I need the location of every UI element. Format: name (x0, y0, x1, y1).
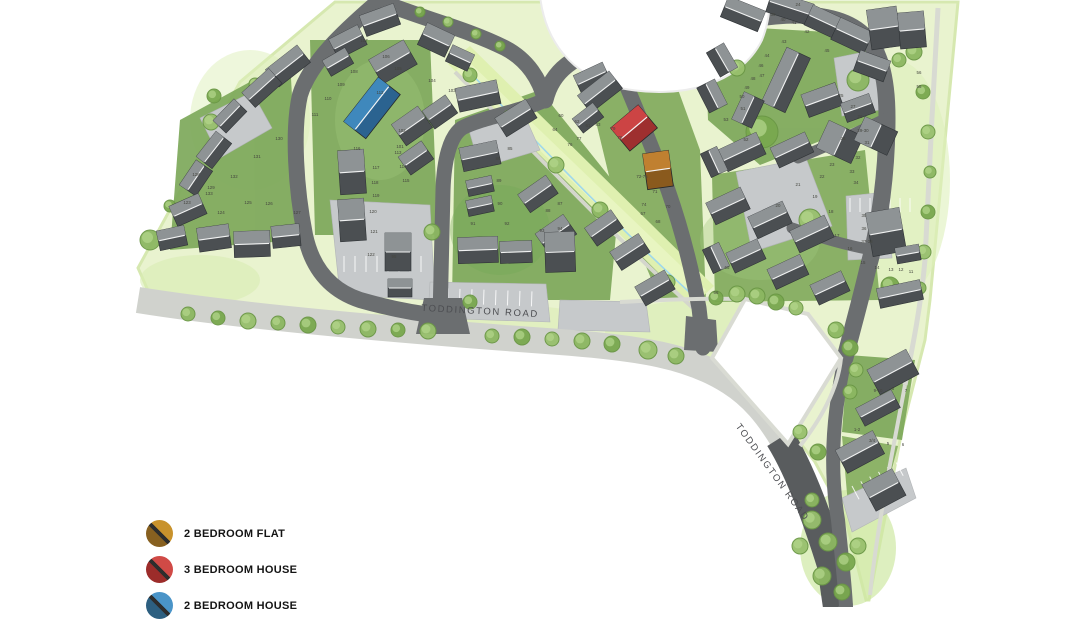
tree (805, 493, 819, 507)
plot-number-label: 112 (377, 90, 385, 95)
plot-number-label: 74 (642, 202, 647, 207)
plot-number-label: 124 (217, 210, 225, 215)
plot-number-label: 118 (372, 180, 380, 185)
plot-number-label: 24 (796, 2, 801, 7)
plot-number-label: 87 (558, 201, 563, 206)
plot-number-label: 40 (781, 17, 786, 22)
tree (834, 584, 850, 600)
plot-number-label: 108 (350, 69, 358, 74)
plot-number-label: 102 (398, 128, 406, 133)
tree (924, 166, 936, 178)
plot-number-label: 47 (760, 73, 765, 78)
plot-number-label: 52 (744, 137, 749, 142)
plot-number-label: 94 (558, 226, 563, 231)
tree (842, 340, 858, 356)
plot-number-label: 41 (792, 20, 797, 25)
plot-number-label: 50 (740, 94, 745, 99)
plot-number-label: 68 (656, 219, 661, 224)
plot-number-label: 1-2 (854, 427, 861, 432)
plot-number-label: 17 (835, 233, 840, 238)
tree (391, 323, 405, 337)
tree (639, 341, 657, 359)
plot-number-label: 61 (586, 123, 591, 128)
tree (548, 157, 564, 173)
plot-number-label: 106 (382, 54, 390, 59)
plot-number-label: 56 (917, 70, 922, 75)
tree (837, 553, 855, 571)
available-unit-2-bedroom-flat[interactable] (643, 150, 674, 189)
tree (443, 17, 453, 27)
plot-number-label: 65 (725, 265, 730, 270)
tree (819, 533, 837, 551)
plot-number-label: 18 (829, 209, 834, 214)
plot-number-label: 117 (373, 165, 381, 170)
plot-number-label: 88 (546, 208, 551, 213)
plot-number-label: 72-75 (636, 174, 648, 179)
plot-number-label: 6 (902, 442, 905, 447)
tree (792, 538, 808, 554)
plot-number-label: 11 (909, 269, 914, 274)
house-block (544, 231, 575, 272)
plot-number-label: 115 (403, 178, 411, 183)
tree (485, 329, 499, 343)
plot-number-label: 132 (230, 174, 238, 179)
plot-number-label: 64 (553, 127, 558, 132)
tree (729, 286, 745, 302)
plot-number-label: 32 (856, 155, 861, 160)
tree (850, 538, 866, 554)
plot-number-label: 86 (496, 156, 501, 161)
tree (574, 333, 590, 349)
plot-number-label: 131 (253, 154, 261, 159)
plot-number-label: 34 (854, 180, 859, 185)
house-block (338, 198, 367, 242)
house-block (271, 224, 301, 249)
plot-number-label: 55 (917, 84, 922, 89)
plot-number-label: 120 (369, 209, 377, 214)
plot-number-label: 123 (183, 200, 191, 205)
plot-number-label: 44 (765, 53, 770, 58)
plot-number-label: 122 (367, 252, 375, 257)
plot-number-label: 16 (848, 246, 853, 251)
plot-number-label: 29-30 (857, 128, 869, 133)
tree (668, 348, 684, 364)
plot-number-label: 63 (596, 122, 601, 127)
plot-number-label: 14 (875, 265, 880, 270)
plot-number-label: 113 (395, 150, 403, 155)
plot-number-label: 33 (850, 169, 855, 174)
tree (415, 7, 425, 17)
tree (495, 41, 505, 51)
tree (828, 322, 844, 338)
tree (207, 89, 221, 103)
plot-number-label: 28 (858, 114, 863, 119)
plot-number-label: 22 (820, 174, 825, 179)
plot-number-label: 127 (293, 210, 301, 215)
plot-number-label: 110 (325, 96, 333, 101)
plot-number-label: 51 (741, 106, 746, 111)
tree (921, 125, 935, 139)
plot-number-label: 35 (862, 213, 867, 218)
site-plan-map: 1231241251261271281291301311321331011021… (0, 0, 1080, 607)
house-block (385, 233, 411, 271)
plot-number-label: 121 (370, 229, 378, 234)
plot-number-label: 114 (400, 164, 408, 169)
plot-number-label: 62 (575, 119, 580, 124)
site-plan-page: { "map": { "description": "Housing devel… (0, 0, 1080, 607)
tree (768, 294, 784, 310)
plot-number-label: 128 (192, 172, 200, 177)
house-block (196, 224, 231, 252)
tree (514, 329, 530, 345)
plot-number-label: 109 (337, 82, 345, 87)
house-block (866, 6, 901, 50)
plot-number-label: 48 (751, 76, 756, 81)
tree (545, 332, 559, 346)
plot-number-label: 3/4 (869, 438, 876, 443)
plot-number-label: 91 (471, 221, 476, 226)
tree (789, 301, 803, 315)
plot-number-label: 46 (759, 63, 764, 68)
tree (810, 444, 826, 460)
tree (892, 53, 906, 67)
plot-number-label: 19 (813, 194, 818, 199)
plot-number-label: 37-38 (861, 239, 873, 244)
tree (331, 320, 345, 334)
plot-number-label: 116 (354, 146, 362, 151)
house-block (337, 149, 366, 195)
tree (271, 316, 285, 330)
house-block (500, 240, 533, 263)
plot-number-label: 107 (360, 38, 368, 43)
tree (240, 313, 256, 329)
plot-number-label: 49 (745, 85, 750, 90)
plot-number-label: 78 (618, 135, 623, 140)
plot-number-label: 36 (862, 226, 867, 231)
plot-number-label: 60 (559, 113, 564, 118)
tree (849, 363, 863, 377)
plot-number-label: 119 (373, 193, 381, 198)
tree (181, 307, 195, 321)
plot-number-label: 111 (312, 112, 319, 117)
plot-number-label: 89 (497, 178, 502, 183)
plot-number-label: 25 (839, 93, 844, 98)
house-block (388, 279, 412, 297)
plot-number-label: 71 (653, 189, 658, 194)
plot-number-label: 13 (889, 267, 894, 272)
tree (424, 224, 440, 240)
plot-number-label: 129 (207, 185, 215, 190)
plot-number-label: 76 (568, 142, 573, 147)
tree (604, 336, 620, 352)
plot-number-label: 31 (865, 140, 870, 145)
plot-number-label: 79 (611, 126, 616, 131)
plot-number-label: 125 (244, 200, 252, 205)
tree (300, 317, 316, 333)
plot-number-label: 9-10 (874, 388, 883, 393)
plot-number-label: 130 (275, 136, 283, 141)
plot-number-label: 95 (392, 254, 397, 259)
plot-number-label: 53 (724, 117, 729, 122)
house-block (458, 236, 499, 263)
plot-number-label: 43 (782, 39, 787, 44)
plot-number-label: 126 (265, 201, 273, 206)
tree (360, 321, 376, 337)
house-block (234, 230, 271, 257)
plot-number-label: 23 (830, 162, 835, 167)
tree (420, 323, 436, 339)
plot-number-label: 42 (805, 29, 810, 34)
tree (921, 205, 935, 219)
plot-number-label: 15 (861, 260, 866, 265)
plot-number-label: 39 (771, 12, 776, 17)
plot-number-label: 26 (841, 136, 846, 141)
plot-number-label: 133 (205, 191, 213, 196)
plot-number-label: 27 (851, 104, 856, 109)
plot-number-label: 104 (428, 78, 436, 83)
plot-number-label: 92 (505, 221, 510, 226)
plot-number-label: 105 (394, 66, 402, 71)
tree (793, 425, 807, 439)
plot-number-label: 90 (498, 201, 503, 206)
tree (813, 567, 831, 585)
plot-number-label: 93 (540, 228, 545, 233)
plot-number-label: 45 (825, 48, 830, 53)
plot-number-label: 66 (714, 290, 719, 295)
plot-number-label: 21 (796, 182, 801, 187)
plot-number-label: 67 (641, 211, 646, 216)
tree (749, 288, 765, 304)
plot-number-label: 85 (508, 146, 513, 151)
plot-number-label: 70 (666, 204, 671, 209)
tree (843, 385, 857, 399)
plot-number-label: 103 (448, 88, 456, 93)
plot-number-label: 12 (899, 267, 904, 272)
house-block (897, 11, 926, 49)
plot-number-label: 77 (577, 136, 582, 141)
tree (471, 29, 481, 39)
tree (211, 311, 225, 325)
plot-number-label: 101 (396, 144, 404, 149)
plot-number-label: 20 (776, 203, 781, 208)
